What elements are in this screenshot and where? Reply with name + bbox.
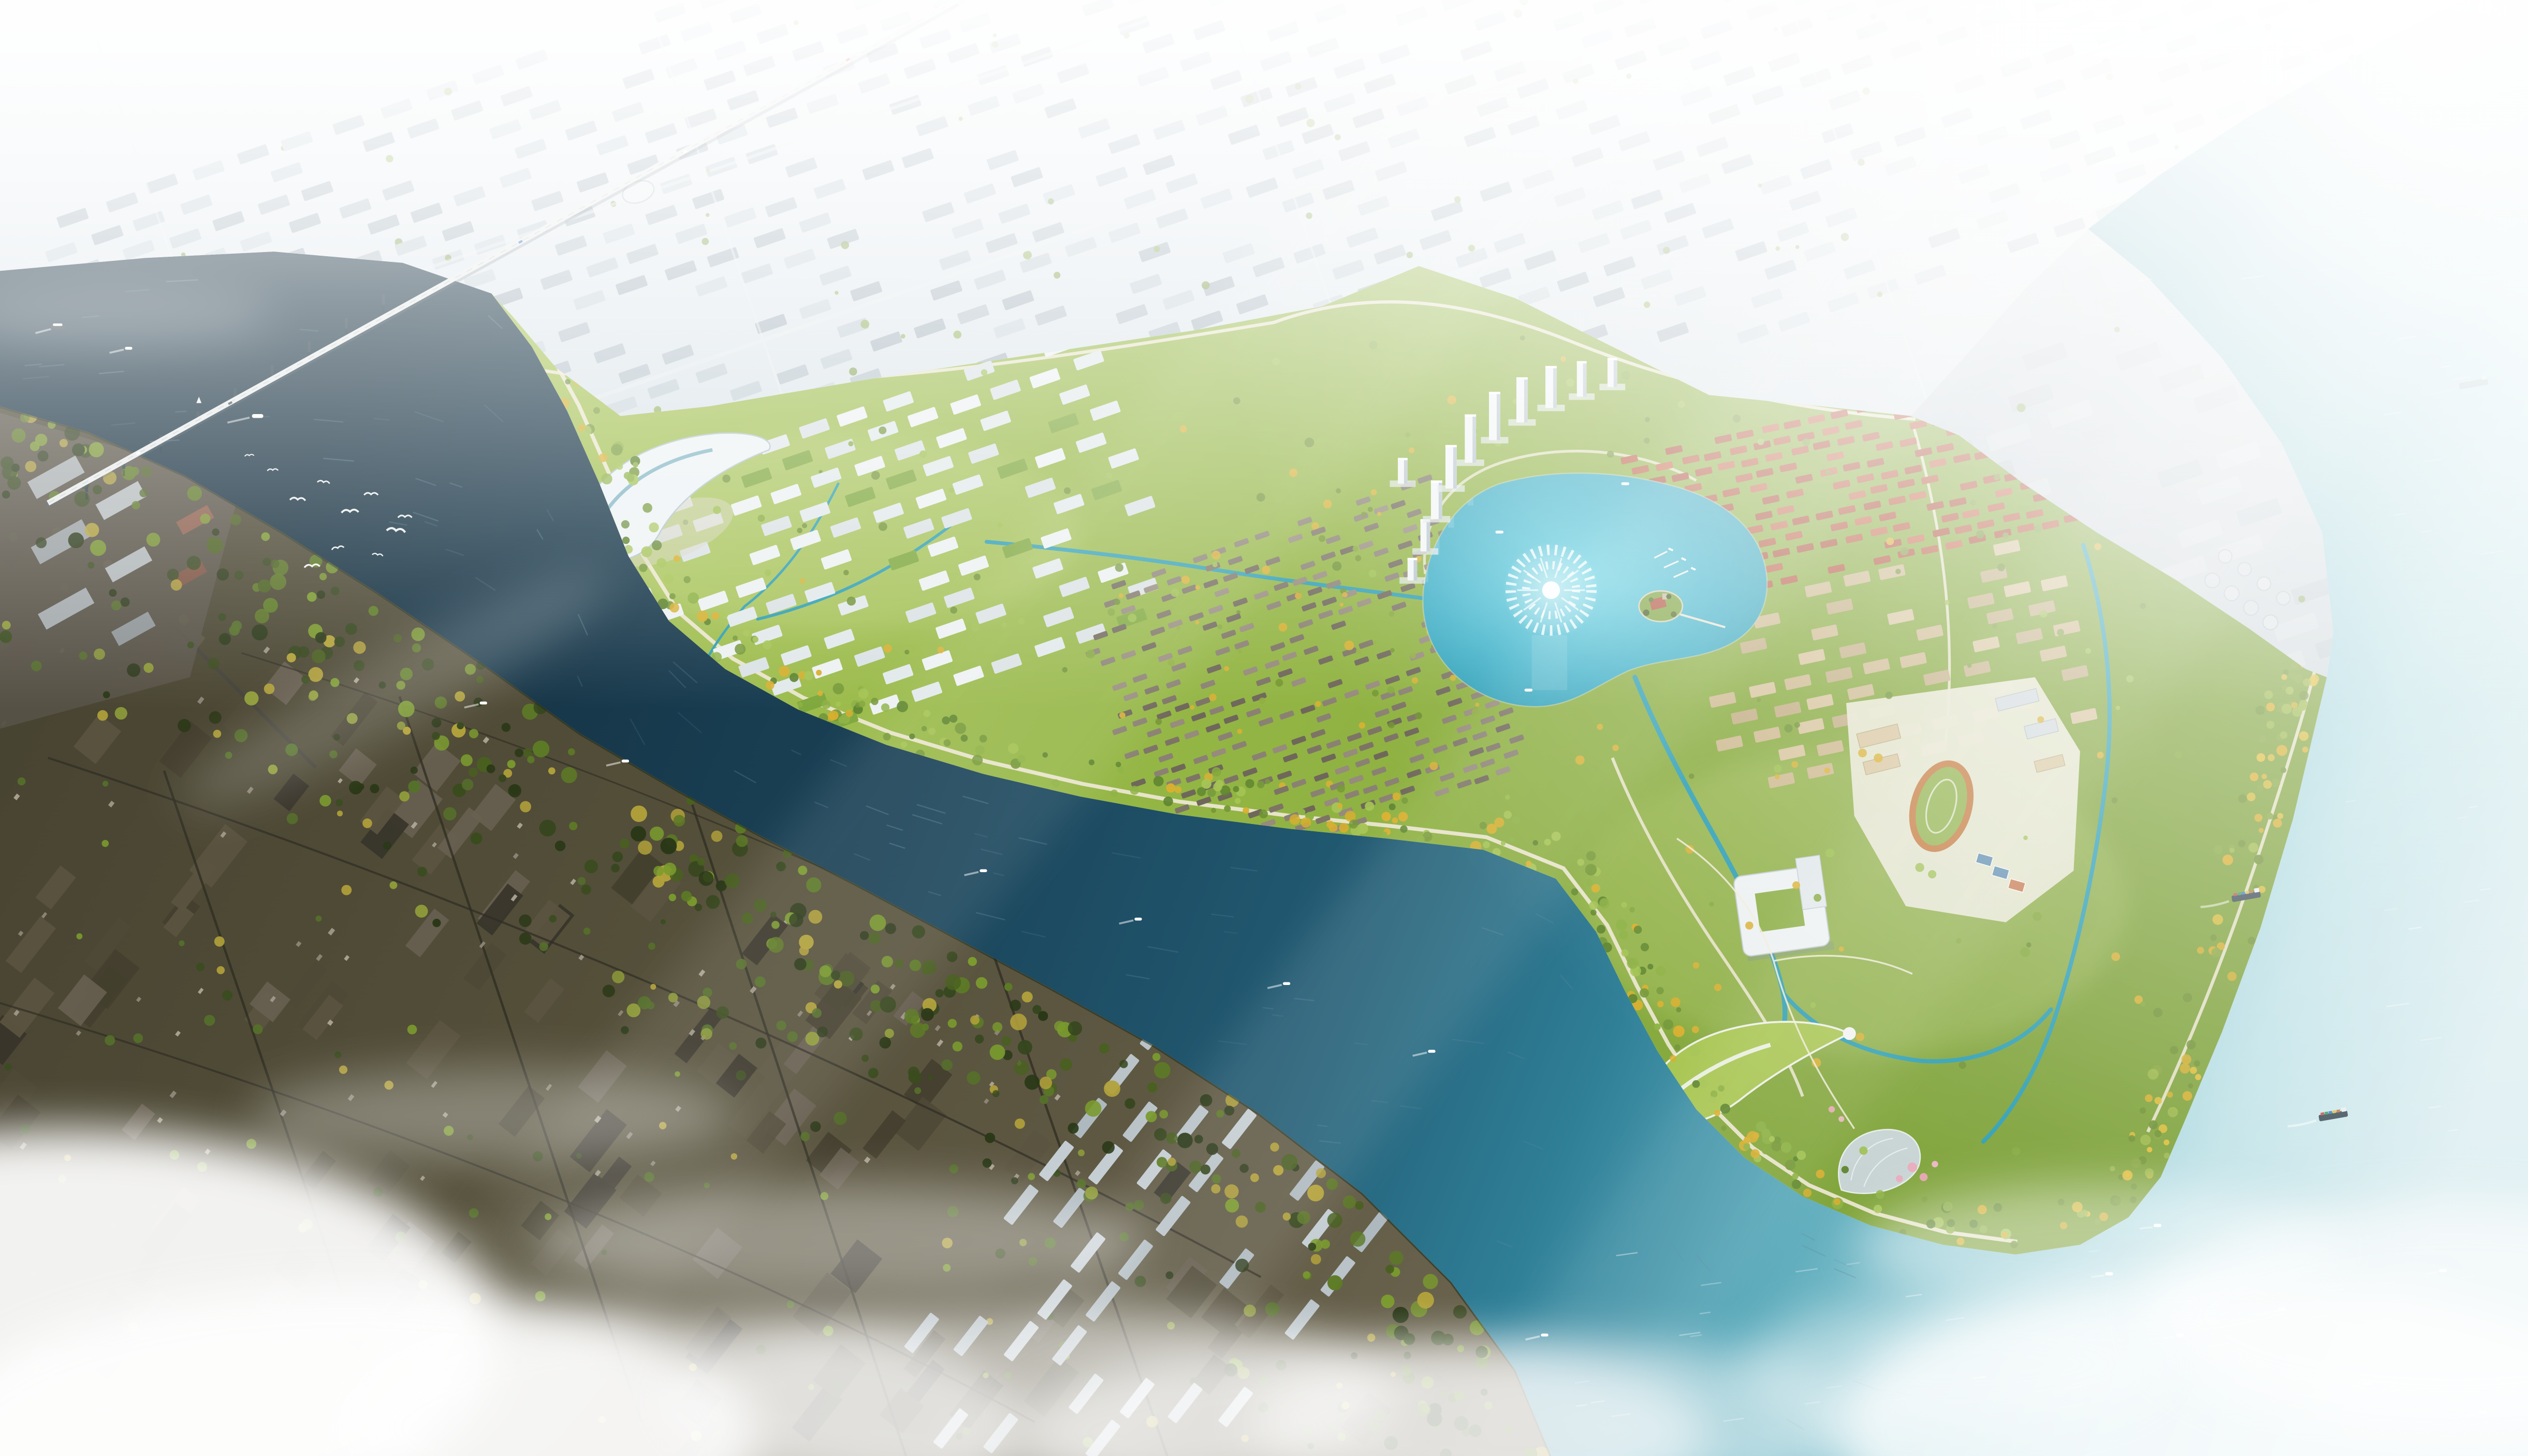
diagonal-light-overlay: [0, 0, 2528, 1456]
aerial-rendering: Aerial masterplan rendering of a riverfr…: [0, 0, 2528, 1456]
scene-svg: Aerial masterplan rendering of a riverfr…: [0, 0, 2528, 1456]
